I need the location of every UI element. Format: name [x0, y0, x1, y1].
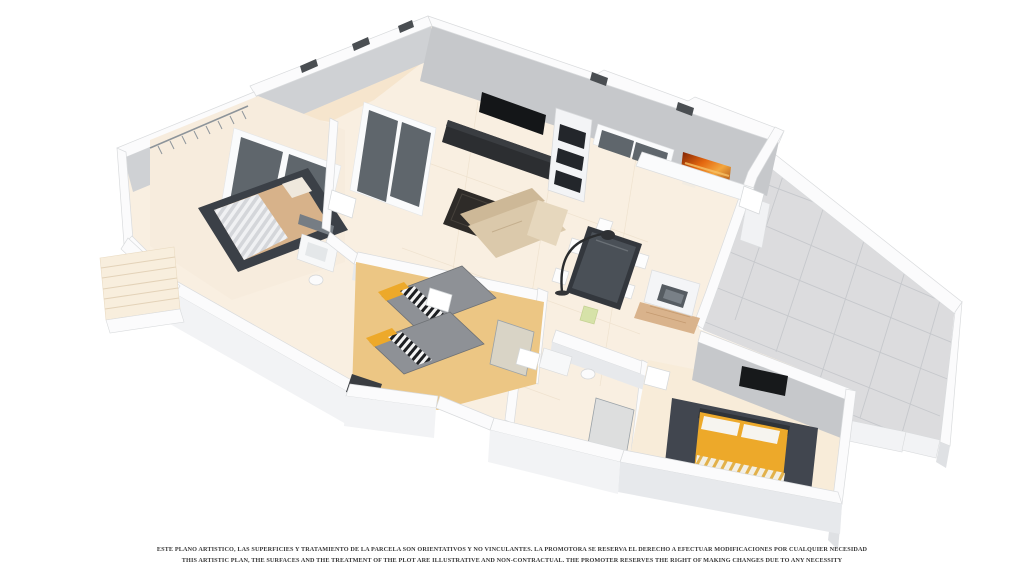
toilet-2 [581, 369, 595, 379]
staircase [100, 238, 184, 333]
floor-plan-page: ESTE PLANO ARTISTICO, LAS SUPERFICIES Y … [0, 0, 1024, 576]
left-wing [100, 92, 353, 424]
disclaimer-line-english: THIS ARTISTIC PLAN, THE SURFACES AND THE… [0, 556, 1024, 567]
display-cabinet [548, 108, 592, 202]
disclaimer: ESTE PLANO ARTISTICO, LAS SUPERFICIES Y … [0, 545, 1024, 566]
floor-plan-render [0, 0, 1024, 576]
toilet [309, 275, 323, 285]
disclaimer-line-spanish: ESTE PLANO ARTISTICO, LAS SUPERFICIES Y … [0, 545, 1024, 556]
